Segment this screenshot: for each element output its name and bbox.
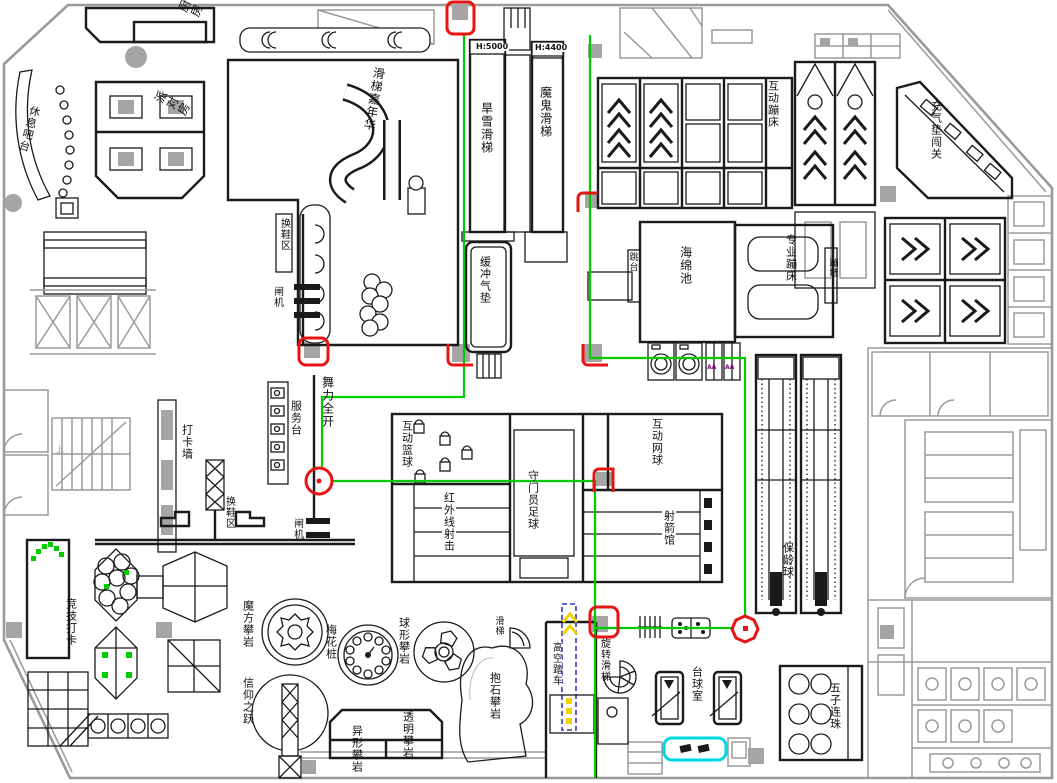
bowling-zone: [756, 355, 841, 616]
floorplan-canvas: [0, 0, 1057, 783]
plum-piles-icon: [338, 625, 398, 685]
basketball-machines: [414, 420, 472, 483]
dry-snow-slide-zone: [462, 40, 514, 241]
checkin-wall-zone: [158, 400, 176, 552]
devil-slide-zone: [525, 42, 567, 262]
escalator-right: [588, 272, 632, 300]
shaped-transparent-climbing-hut: [330, 710, 442, 758]
sky-bike-zone: [546, 604, 596, 778]
games-block: [392, 414, 722, 582]
buffer-cushion-zone: [466, 242, 511, 378]
ball-washers: [648, 343, 740, 380]
sponge-pool-zone: [628, 222, 735, 342]
base-building-shell: [4, 4, 1052, 778]
spiral-slide-icon: [598, 661, 636, 744]
shoe-tray: [664, 738, 726, 760]
pro-trampoline-zone: [735, 225, 837, 337]
slide-carnival-zone: [228, 28, 458, 345]
boulder-climbing-blob: [460, 628, 533, 762]
clover-pads: [360, 274, 392, 336]
stairs-ladder: [504, 8, 530, 232]
shoe-area-2-zone: [95, 460, 355, 544]
cube-climbing-icon: [262, 599, 328, 665]
floor-plan: 厨房休息吧台派对房滑梯嘉年华H:5000H:4400旱雪滑梯魔鬼滑梯缓冲气垫互动…: [0, 0, 1057, 783]
service-desk-zone: [268, 375, 314, 520]
party-room-zone: [96, 82, 204, 198]
inflatable-challenge-zone: [897, 82, 1012, 198]
gomoku-zone: [780, 666, 862, 760]
air-track-zone: [885, 218, 1005, 343]
sphere-climbing-icon: [414, 622, 474, 682]
billiards-zone: [652, 672, 741, 724]
kitchen-zone: [86, 8, 214, 42]
competitive-checkin-zone: [27, 540, 227, 746]
archery-targets: [704, 498, 712, 574]
leap-of-faith-icon: [252, 675, 328, 778]
interactive-trampoline-zone: [598, 78, 792, 208]
climbing-towers: [795, 62, 875, 288]
rest-bar-zone: [16, 70, 78, 218]
